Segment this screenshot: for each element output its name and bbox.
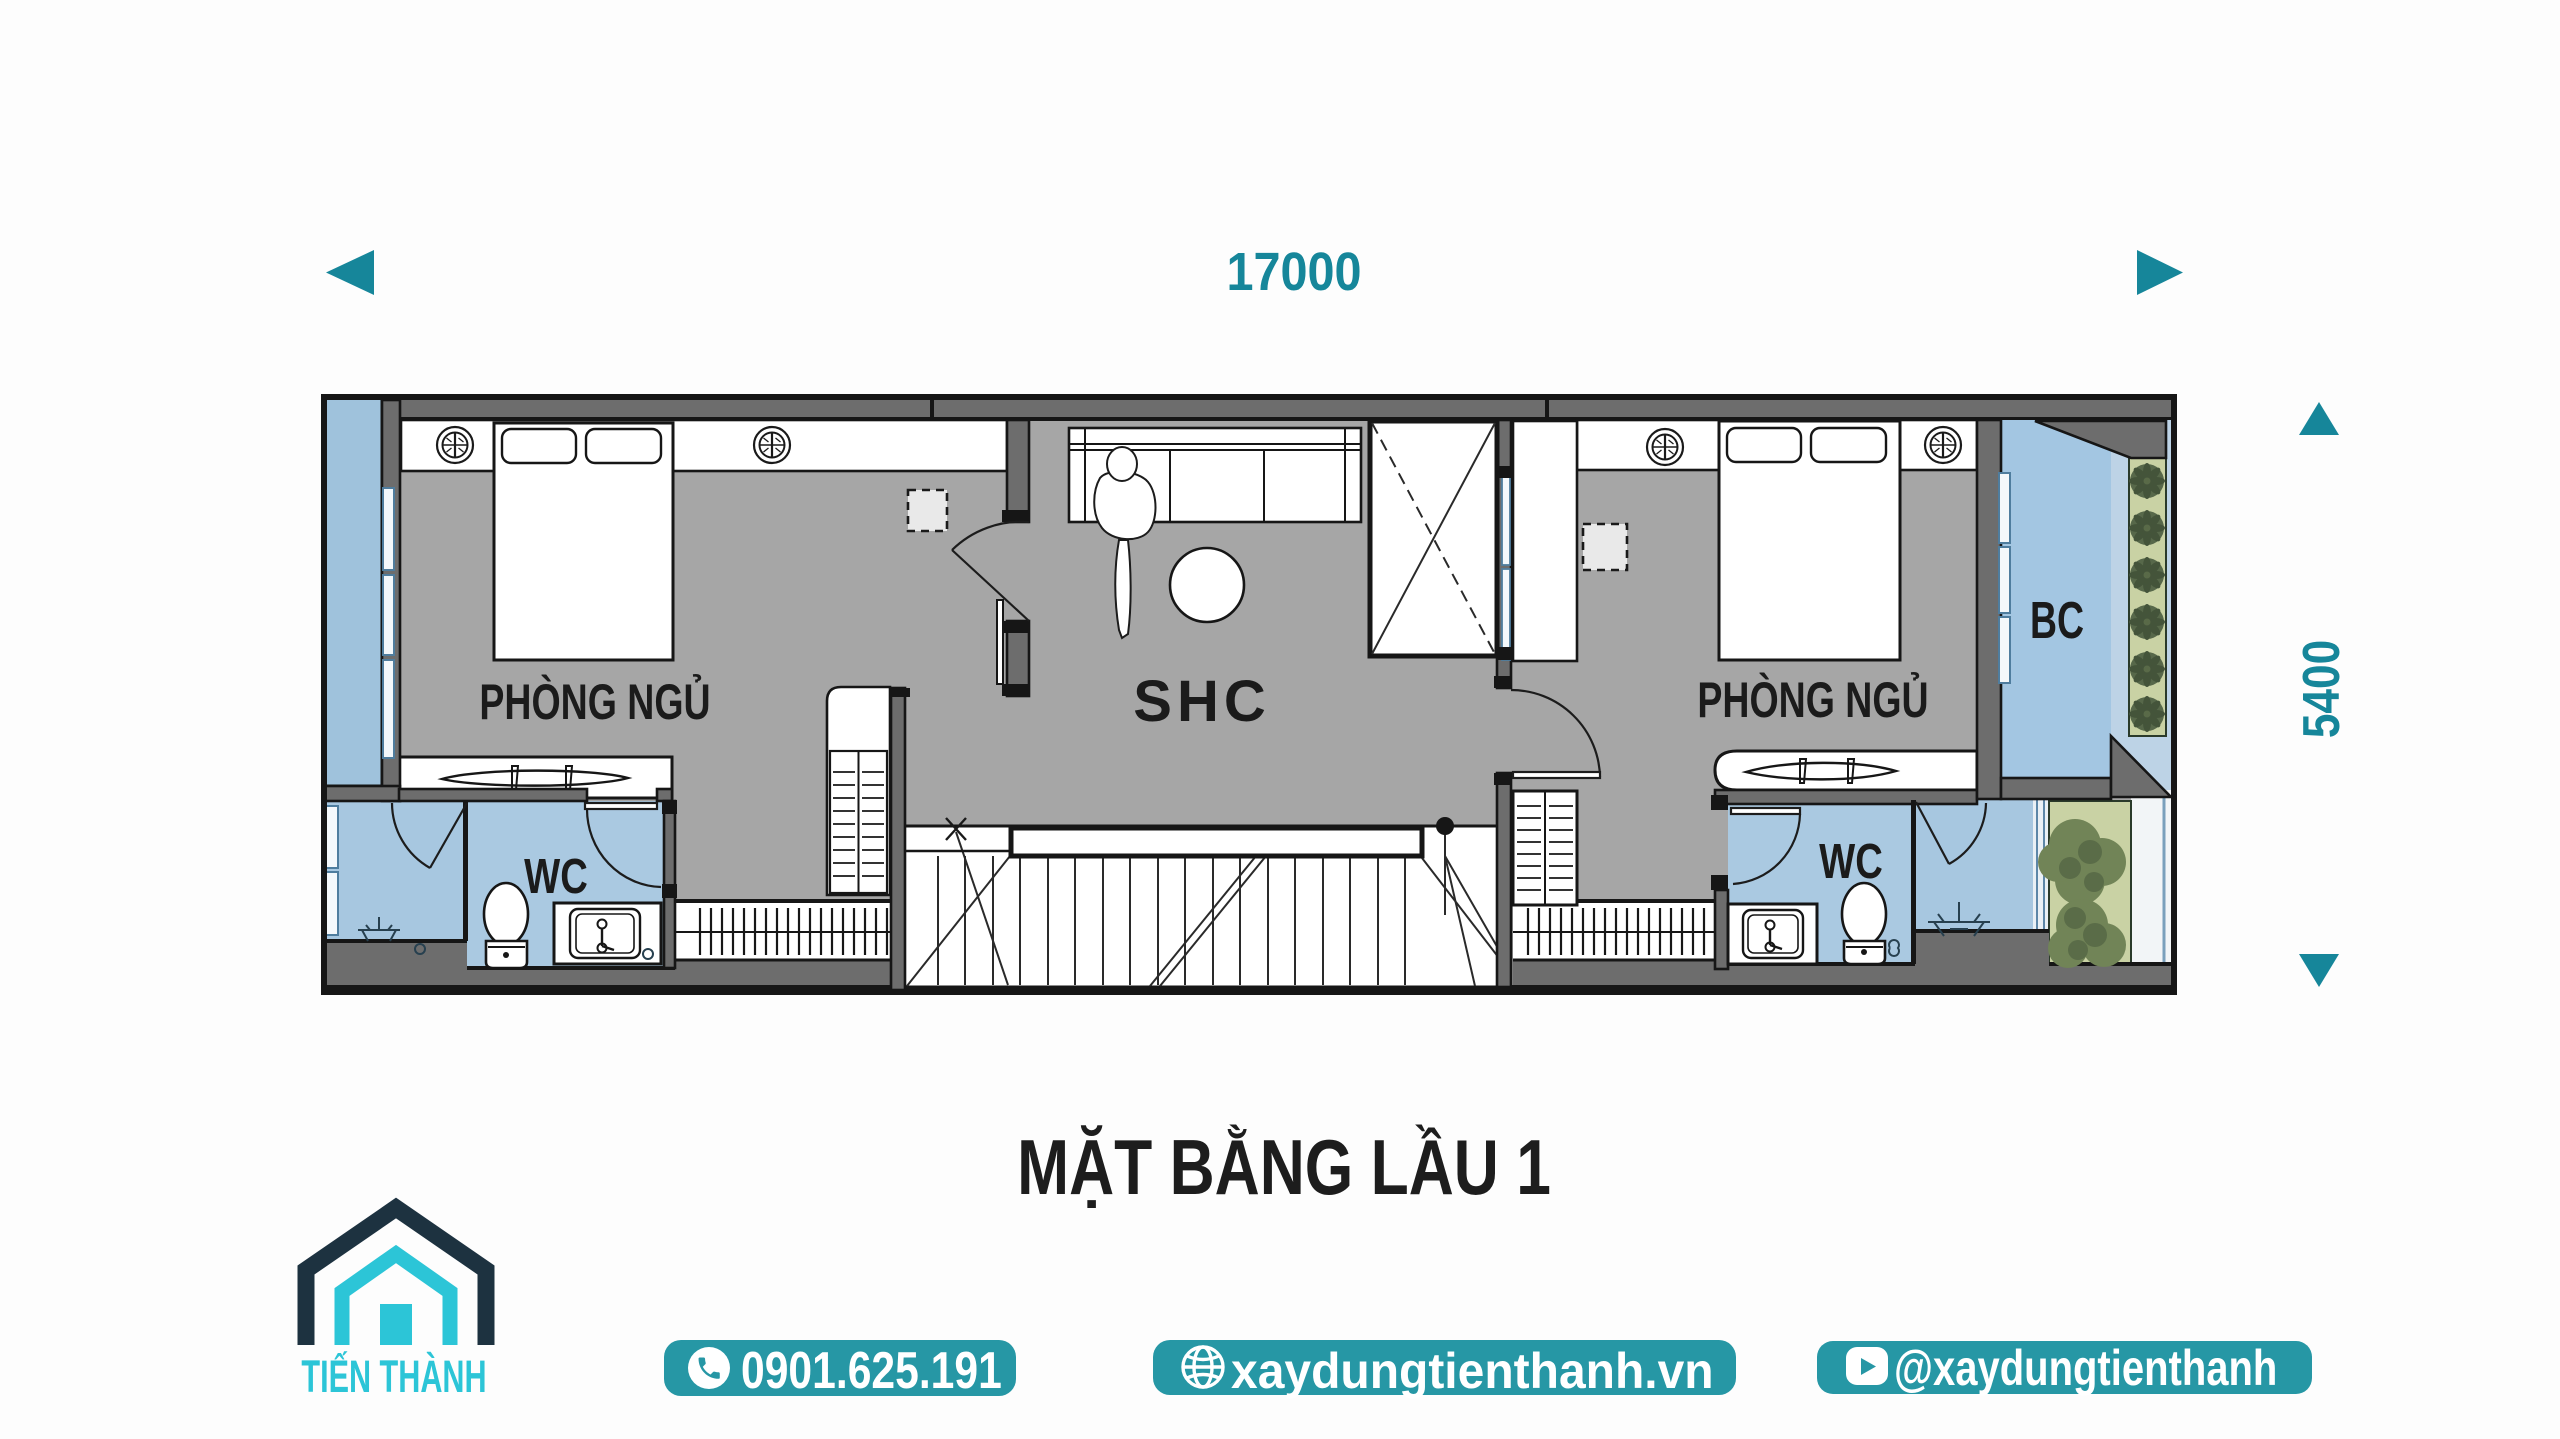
svg-text:WC: WC	[524, 850, 588, 905]
svg-text:TIẾN THÀNH: TIẾN THÀNH	[301, 1351, 486, 1402]
svg-text:xaydungtienthanh.vn: xaydungtienthanh.vn	[1231, 1344, 1714, 1399]
svg-text:0901.625.191: 0901.625.191	[741, 1342, 1002, 1400]
svg-text:SHC: SHC	[1133, 669, 1270, 734]
svg-text:PHÒNG NGỦ: PHÒNG NGỦ	[1697, 671, 1928, 729]
svg-text:PHÒNG NGỦ: PHÒNG NGỦ	[479, 673, 710, 731]
svg-text:5400: 5400	[2293, 640, 2351, 738]
svg-text:WC: WC	[1819, 835, 1883, 890]
svg-text:17000: 17000	[1226, 241, 1361, 302]
svg-text:BC: BC	[2030, 591, 2084, 650]
svg-text:@xaydungtienthanh: @xaydungtienthanh	[1894, 1340, 2277, 1396]
svg-text:MẶT BẰNG LẦU 1: MẶT BẰNG LẦU 1	[1017, 1123, 1551, 1210]
